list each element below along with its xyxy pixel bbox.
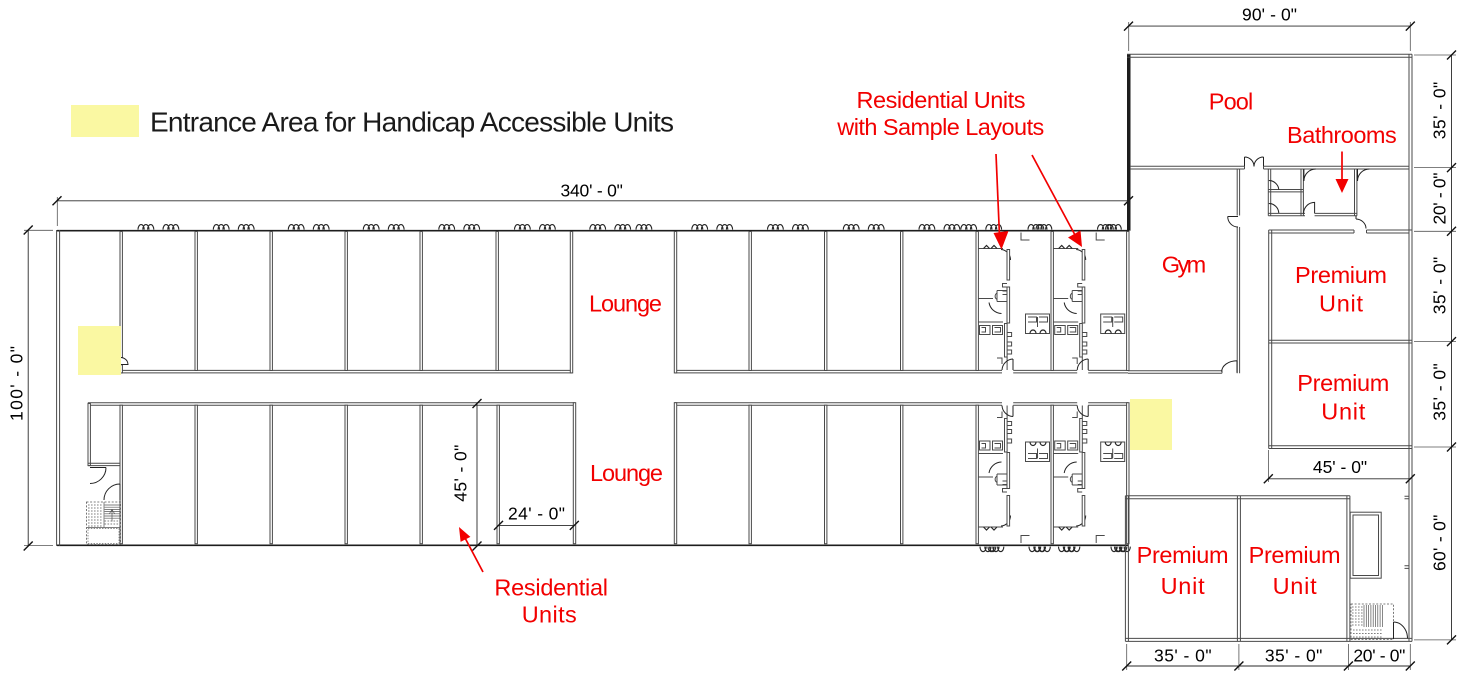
svg-text:35' - 0": 35' - 0" <box>1430 363 1450 421</box>
svg-text:100' - 0": 100' - 0" <box>7 346 27 421</box>
svg-text:35' - 0": 35' - 0" <box>1430 82 1450 140</box>
svg-text:20' - 0": 20' - 0" <box>1353 646 1405 666</box>
svg-text:35' - 0": 35' - 0" <box>1154 646 1212 666</box>
svg-text:90' - 0": 90' - 0" <box>1242 5 1297 25</box>
svg-text:Bathrooms: Bathrooms <box>1287 122 1397 148</box>
svg-text:Unit: Unit <box>1161 573 1205 599</box>
svg-text:Premium: Premium <box>1249 542 1341 568</box>
svg-text:Pool: Pool <box>1209 89 1253 115</box>
svg-text:Residential: Residential <box>494 575 608 601</box>
svg-text:35' - 0": 35' - 0" <box>1265 646 1323 666</box>
svg-text:60' - 0": 60' - 0" <box>1430 515 1450 571</box>
svg-text:Entrance Area for Handicap Acc: Entrance Area for Handicap Accessible Un… <box>150 107 674 138</box>
svg-text:Lounge: Lounge <box>590 460 663 486</box>
svg-text:Lounge: Lounge <box>589 291 662 317</box>
svg-text:Premium: Premium <box>1137 542 1229 568</box>
svg-text:45' - 0": 45' - 0" <box>451 445 471 502</box>
svg-text:Unit: Unit <box>1319 291 1363 317</box>
svg-text:45' - 0": 45' - 0" <box>1313 457 1367 477</box>
svg-text:Gym: Gym <box>1162 252 1207 278</box>
svg-text:340' - 0": 340' - 0" <box>561 181 623 201</box>
svg-text:20' - 0": 20' - 0" <box>1430 173 1450 225</box>
svg-text:Premium: Premium <box>1295 262 1387 288</box>
svg-text:Residential Units: Residential Units <box>857 87 1026 113</box>
svg-text:24' - 0": 24' - 0" <box>508 504 565 524</box>
svg-text:Premium: Premium <box>1297 370 1389 396</box>
svg-text:Unit: Unit <box>1273 573 1317 599</box>
svg-text:Unit: Unit <box>1321 399 1365 425</box>
svg-text:Units: Units <box>522 602 577 628</box>
svg-text:with Sample Layouts: with Sample Layouts <box>836 114 1044 140</box>
svg-text:35' - 0": 35' - 0" <box>1430 257 1450 315</box>
